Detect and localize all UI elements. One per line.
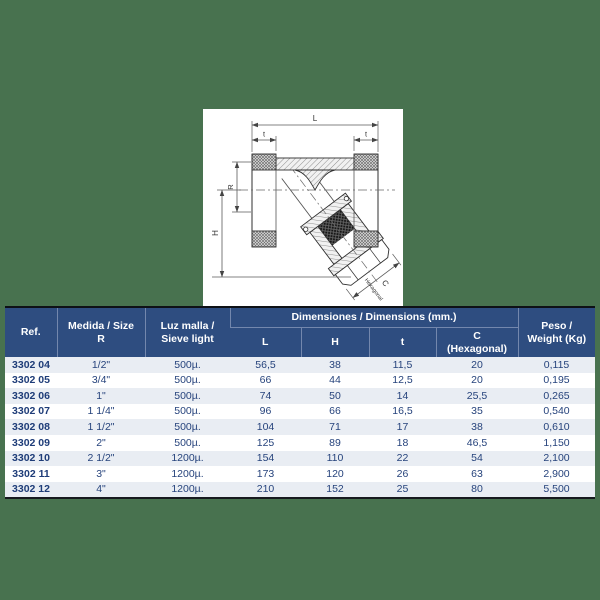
cell-ref: 3302 08 (5, 419, 57, 435)
cell-c: 54 (436, 451, 518, 467)
cell-c: 35 (436, 404, 518, 420)
table-row: 3302 11 3" 1200µ. 173 120 26 63 2,900 (5, 466, 595, 482)
header-col-t: t (369, 328, 436, 358)
cell-t: 17 (369, 419, 436, 435)
cell-ref: 3302 05 (5, 373, 57, 389)
cell-t: 25 (369, 482, 436, 499)
cell-weight: 2,100 (518, 451, 595, 467)
dim-label-r: R (226, 184, 235, 190)
cell-l: 125 (230, 435, 301, 451)
dim-label-t-right: t (365, 130, 368, 139)
threaded-end (252, 231, 276, 247)
cell-weight: 1,150 (518, 435, 595, 451)
dim-label-t-left: t (263, 130, 266, 139)
cell-size: 3/4" (57, 373, 145, 389)
header-col-h: H (301, 328, 369, 358)
cell-h: 89 (301, 435, 369, 451)
cell-size: 2" (57, 435, 145, 451)
datasheet-page: C Hexagonal (0, 0, 600, 600)
cell-sieve: 500µ. (145, 435, 230, 451)
cell-l: 74 (230, 388, 301, 404)
cell-sieve: 500µ. (145, 373, 230, 389)
cell-size: 1 1/4" (57, 404, 145, 420)
cell-h: 152 (301, 482, 369, 499)
dim-label-h: H (211, 230, 220, 236)
cell-l: 66 (230, 373, 301, 389)
cell-l: 173 (230, 466, 301, 482)
cell-c: 63 (436, 466, 518, 482)
table-row: 3302 06 1" 500µ. 74 50 14 25,5 0,265 (5, 388, 595, 404)
cell-t: 11,5 (369, 357, 436, 373)
cell-l: 154 (230, 451, 301, 467)
cell-t: 22 (369, 451, 436, 467)
cell-sieve: 1200µ. (145, 466, 230, 482)
cell-h: 120 (301, 466, 369, 482)
cell-weight: 5,500 (518, 482, 595, 499)
cell-size: 2 1/2" (57, 451, 145, 467)
cell-c: 38 (436, 419, 518, 435)
cell-ref: 3302 04 (5, 357, 57, 373)
cell-h: 71 (301, 419, 369, 435)
header-size: Medida / Size R (57, 307, 145, 357)
cell-ref: 3302 07 (5, 404, 57, 420)
cell-l: 96 (230, 404, 301, 420)
table-row: 3302 05 3/4" 500µ. 66 44 12,5 20 0,195 (5, 373, 595, 389)
cell-t: 18 (369, 435, 436, 451)
cell-weight: 0,610 (518, 419, 595, 435)
cell-c: 25,5 (436, 388, 518, 404)
table-row: 3302 10 2 1/2" 1200µ. 154 110 22 54 2,10… (5, 451, 595, 467)
cell-h: 66 (301, 404, 369, 420)
cell-h: 110 (301, 451, 369, 467)
cell-h: 38 (301, 357, 369, 373)
header-col-c: C (Hexagonal) (436, 328, 518, 358)
dim-label-hexagonal: Hexagonal (363, 278, 384, 303)
threaded-end (354, 231, 378, 247)
table-row: 3302 07 1 1/4" 500µ. 96 66 16,5 35 0,540 (5, 404, 595, 420)
cell-size: 4" (57, 482, 145, 499)
cell-t: 26 (369, 466, 436, 482)
cell-h: 44 (301, 373, 369, 389)
cell-t: 16,5 (369, 404, 436, 420)
threaded-end (252, 154, 276, 170)
header-dimensions-group: Dimensiones / Dimensions (mm.) (230, 307, 518, 328)
cell-t: 12,5 (369, 373, 436, 389)
header-ref: Ref. (5, 307, 57, 357)
cell-weight: 0,115 (518, 357, 595, 373)
cell-c: 20 (436, 357, 518, 373)
cell-sieve: 500µ. (145, 388, 230, 404)
threaded-end (354, 154, 378, 170)
cell-ref: 3302 11 (5, 466, 57, 482)
cell-sieve: 1200µ. (145, 482, 230, 499)
cell-sieve: 500µ. (145, 357, 230, 373)
table-row: 3302 12 4" 1200µ. 210 152 25 80 5,500 (5, 482, 595, 499)
header-col-l: L (230, 328, 301, 358)
strainer-branch: C Hexagonal (265, 147, 403, 306)
cell-size: 1/2" (57, 357, 145, 373)
table-row: 3302 09 2" 500µ. 125 89 18 46,5 1,150 (5, 435, 595, 451)
cell-h: 50 (301, 388, 369, 404)
cell-weight: 0,265 (518, 388, 595, 404)
dimensions-table-area: Ref. Medida / Size R Luz malla / Sieve l… (5, 306, 595, 499)
cell-weight: 0,540 (518, 404, 595, 420)
header-weight: Peso / Weight (Kg) (518, 307, 595, 357)
cell-c: 20 (436, 373, 518, 389)
dimensions-table: Ref. Medida / Size R Luz malla / Sieve l… (5, 306, 595, 499)
cell-ref: 3302 12 (5, 482, 57, 499)
cell-weight: 2,900 (518, 466, 595, 482)
cell-c: 46,5 (436, 435, 518, 451)
cell-l: 56,5 (230, 357, 301, 373)
cell-l: 210 (230, 482, 301, 499)
cell-t: 14 (369, 388, 436, 404)
cell-ref: 3302 09 (5, 435, 57, 451)
cell-sieve: 500µ. (145, 404, 230, 420)
strainer-diagram-panel: C Hexagonal (203, 109, 403, 306)
cell-ref: 3302 10 (5, 451, 57, 467)
cell-size: 3" (57, 466, 145, 482)
cell-c: 80 (436, 482, 518, 499)
table-row: 3302 04 1/2" 500µ. 56,5 38 11,5 20 0,115 (5, 357, 595, 373)
cell-sieve: 500µ. (145, 419, 230, 435)
table-row: 3302 08 1 1/2" 500µ. 104 71 17 38 0,610 (5, 419, 595, 435)
cell-size: 1" (57, 388, 145, 404)
cell-size: 1 1/2" (57, 419, 145, 435)
dim-label-l: L (313, 114, 318, 123)
dim-label-c: C (380, 278, 391, 288)
header-sieve: Luz malla / Sieve light (145, 307, 230, 357)
cell-ref: 3302 06 (5, 388, 57, 404)
cell-weight: 0,195 (518, 373, 595, 389)
cell-l: 104 (230, 419, 301, 435)
cell-sieve: 1200µ. (145, 451, 230, 467)
y-strainer-technical-drawing: C Hexagonal (203, 109, 403, 306)
